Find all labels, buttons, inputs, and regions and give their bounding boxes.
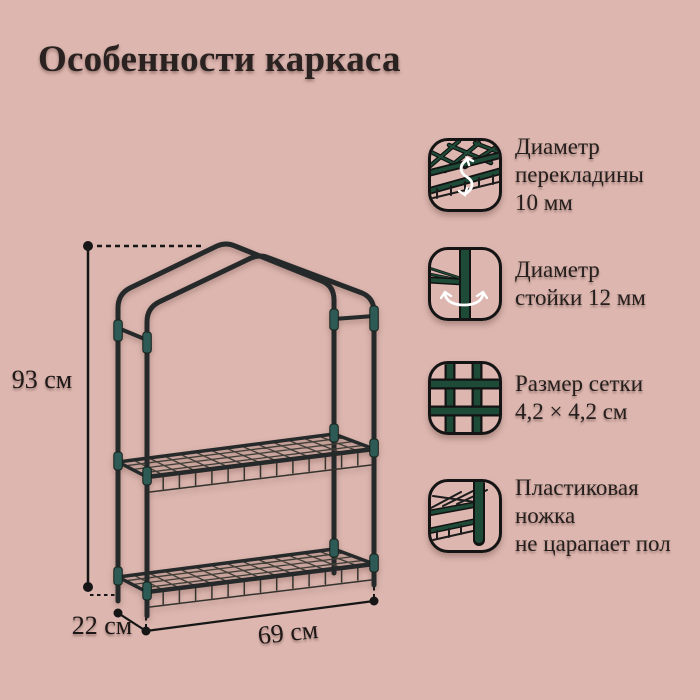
- feature-text: Диаметр стойки 12 мм: [515, 256, 646, 312]
- depth-dimension-label: 22 см: [68, 611, 136, 641]
- feature-text: Пластиковая ножка не царапает пол: [515, 474, 671, 558]
- crossbar-diameter-icon: [428, 138, 502, 212]
- feature-item-mesh: Размер сетки 4,2 × 4,2 см: [428, 361, 643, 435]
- feature-item-foot: Пластиковая ножка не царапает пол: [428, 474, 671, 558]
- height-dimension-label: 93 см: [10, 365, 74, 395]
- plastic-foot-icon: [428, 479, 502, 553]
- mesh-size-icon: [428, 361, 502, 435]
- feature-text: Размер сетки 4,2 × 4,2 см: [515, 370, 643, 426]
- feature-item-post: Диаметр стойки 12 мм: [428, 247, 646, 321]
- feature-text: Диаметр перекладины 10 мм: [515, 133, 644, 217]
- post-diameter-icon: [428, 247, 502, 321]
- product-infographic: Особенности каркаса: [0, 0, 700, 700]
- feature-item-crossbar: Диаметр перекладины 10 мм: [428, 133, 644, 217]
- greenhouse-frame: [114, 244, 379, 616]
- frame-diagram: [0, 0, 700, 700]
